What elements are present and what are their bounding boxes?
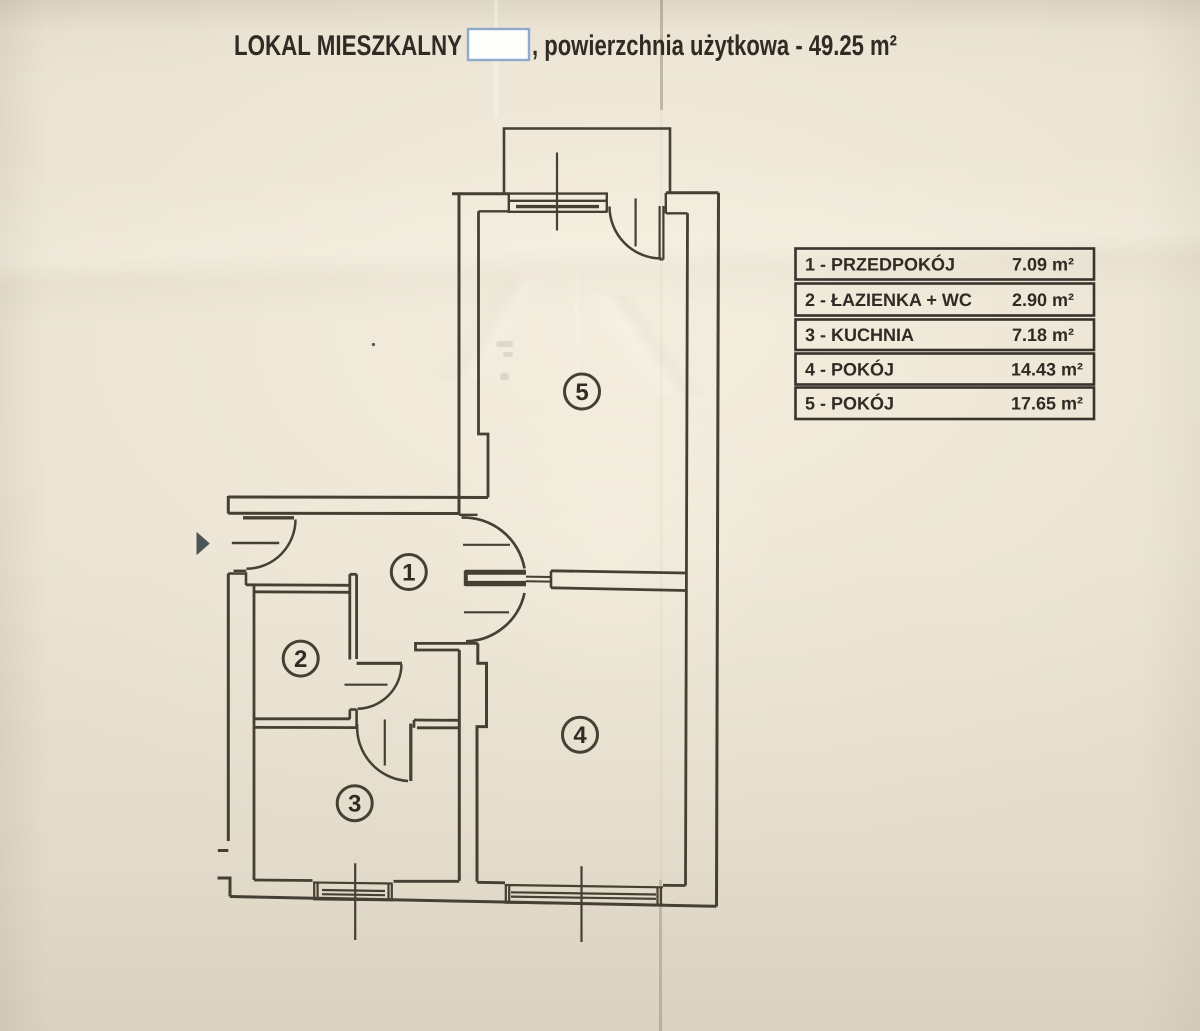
svg-text:4: 4 — [573, 722, 587, 749]
svg-text:7.09 m²: 7.09 m² — [1012, 255, 1074, 275]
svg-text:7.18 m²: 7.18 m² — [1012, 325, 1074, 345]
svg-text:14.43 m²: 14.43 m² — [1011, 360, 1083, 380]
svg-text:17.65 m²: 17.65 m² — [1011, 394, 1083, 414]
svg-text:5 - POKÓJ: 5 - POKÓJ — [805, 394, 894, 414]
svg-text:3 - KUCHNIA: 3 - KUCHNIA — [805, 325, 914, 345]
svg-text:, powierzchnia użytkowa - 49.2: , powierzchnia użytkowa - 49.25 m² — [532, 30, 897, 62]
svg-text:2: 2 — [294, 646, 307, 673]
svg-text:2 - ŁAZIENKA + WC: 2 - ŁAZIENKA + WC — [805, 290, 972, 310]
svg-text:2.90 m²: 2.90 m² — [1012, 290, 1074, 310]
svg-text:5: 5 — [575, 379, 588, 406]
svg-text:1: 1 — [402, 560, 415, 587]
svg-text:3: 3 — [348, 791, 361, 818]
svg-text:4 - POKÓJ: 4 - POKÓJ — [805, 360, 894, 380]
svg-text:LOKAL MIESZKALNY: LOKAL MIESZKALNY — [234, 30, 462, 62]
svg-text:1 - PRZEDPOKÓJ: 1 - PRZEDPOKÓJ — [805, 255, 955, 275]
